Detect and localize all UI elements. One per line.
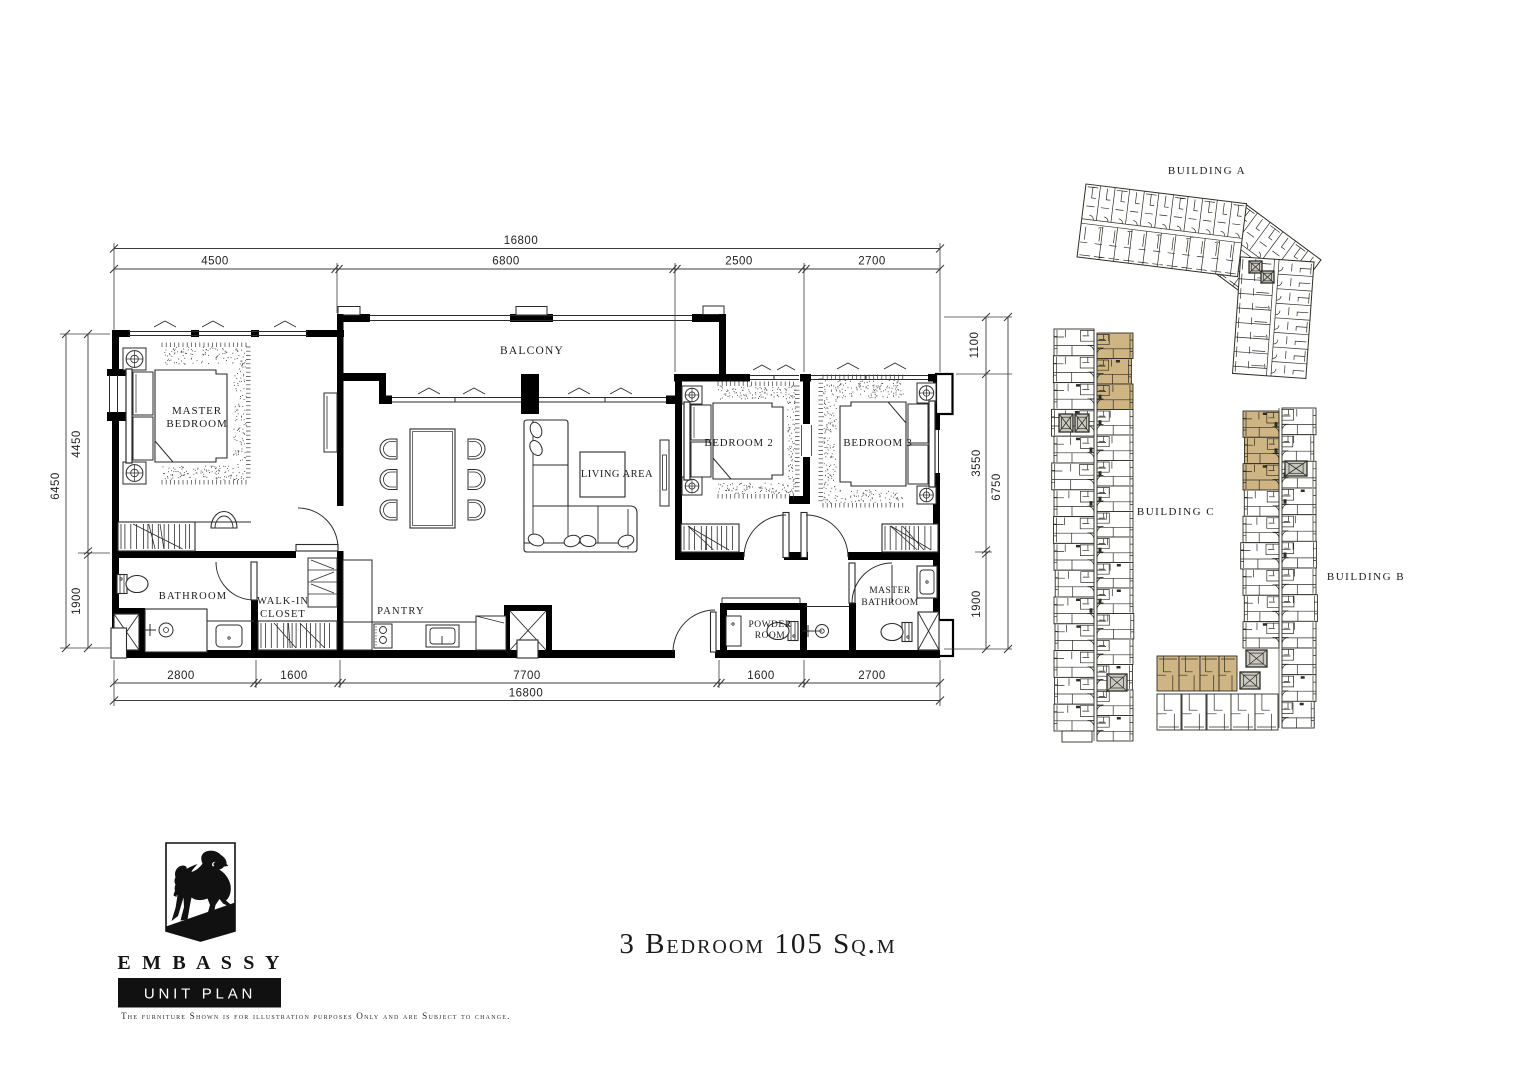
svg-text:LIVING AREA: LIVING AREA [581,469,653,480]
svg-text:PANTRY: PANTRY [377,606,425,617]
svg-text:4450: 4450 [71,430,83,458]
svg-text:7700: 7700 [513,670,541,682]
svg-text:6800: 6800 [492,256,520,268]
svg-text:3550: 3550 [971,449,983,477]
svg-text:UNIT PLAN: UNIT PLAN [144,986,256,1003]
svg-text:CLOSET: CLOSET [260,609,306,620]
svg-text:1900: 1900 [971,590,983,618]
svg-text:2800: 2800 [167,670,195,682]
svg-text:E M B A S S Y: E M B A S S Y [117,952,282,974]
svg-text:2700: 2700 [858,256,886,268]
svg-text:2500: 2500 [725,256,753,268]
svg-text:1600: 1600 [280,670,308,682]
svg-text:6750: 6750 [991,473,1003,501]
svg-text:ROOM: ROOM [755,631,786,641]
svg-text:2700: 2700 [858,670,886,682]
svg-text:4500: 4500 [201,256,229,268]
svg-text:The furniture Shown is for ill: The furniture Shown is for illustration … [121,1011,511,1021]
svg-text:BEDROOM 2: BEDROOM 2 [704,437,773,449]
svg-text:BUILDING A: BUILDING A [1168,165,1246,177]
svg-text:BUILDING B: BUILDING B [1327,571,1405,583]
svg-text:1600: 1600 [747,670,775,682]
svg-text:1900: 1900 [71,587,83,615]
svg-text:6450: 6450 [50,472,62,500]
svg-text:16800: 16800 [509,688,543,700]
svg-text:MASTER: MASTER [869,586,911,596]
svg-text:3 Bedroom 105 Sq.m: 3 Bedroom 105 Sq.m [619,928,896,960]
svg-text:MASTER: MASTER [172,405,222,417]
svg-text:BATHROOM: BATHROOM [159,591,228,602]
svg-text:1100: 1100 [969,332,981,359]
svg-text:WALK-IN: WALK-IN [257,596,309,607]
svg-text:BALCONY: BALCONY [500,345,564,357]
svg-text:BEDROOM 3: BEDROOM 3 [843,437,912,449]
svg-text:POWDER: POWDER [748,620,791,630]
svg-text:BATHROOM: BATHROOM [861,598,918,608]
svg-text:16800: 16800 [504,235,538,247]
svg-text:BEDROOM: BEDROOM [166,418,227,430]
svg-text:BUILDING C: BUILDING C [1137,506,1215,518]
